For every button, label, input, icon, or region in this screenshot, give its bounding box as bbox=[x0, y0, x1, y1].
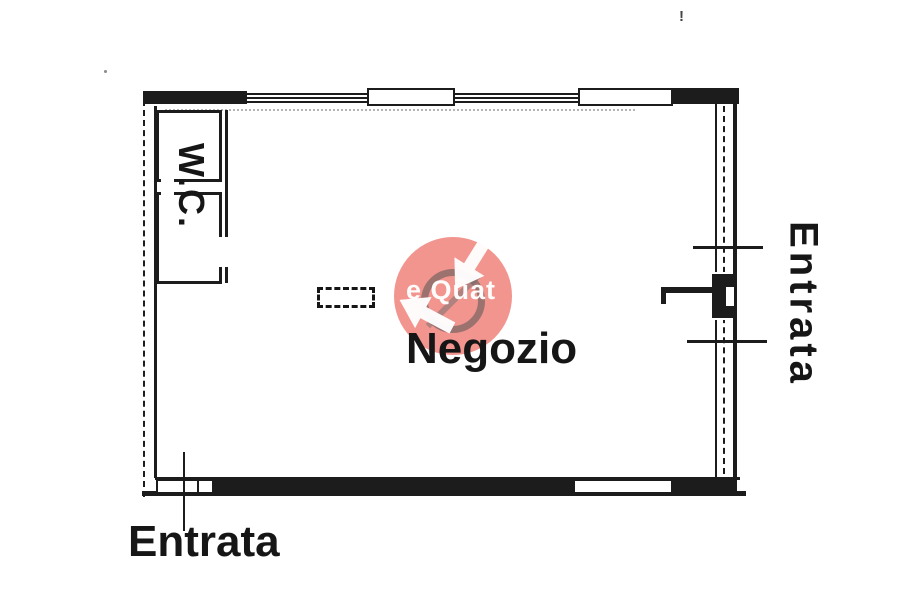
watermark-text: e Quat bbox=[406, 275, 496, 306]
shop-label: Negozio bbox=[406, 324, 577, 374]
top-wall-solid-left bbox=[143, 91, 247, 104]
right-wall-tick-upper bbox=[693, 246, 763, 249]
bottom-wall-left-box bbox=[156, 479, 214, 494]
wc-label: W.C. bbox=[170, 143, 212, 229]
bottom-wall-left-box-divider bbox=[197, 481, 199, 492]
bottom-wall-solid-right bbox=[671, 480, 734, 493]
right-door-jamb-notch bbox=[726, 287, 734, 306]
right-door-leaf bbox=[661, 287, 717, 293]
floor-plan: e Quat W.C. Negozio Entrata Entrata ! bbox=[0, 0, 900, 600]
left-wall-dashed-line bbox=[143, 100, 145, 497]
wc-right-door-gap bbox=[218, 237, 230, 267]
top-wall-pillar-2 bbox=[578, 88, 673, 106]
top-wall-solid-right bbox=[673, 88, 739, 104]
top-wall-window-1 bbox=[247, 93, 367, 103]
right-wall-tick-lower bbox=[687, 340, 767, 343]
right-door-leaf-hook bbox=[661, 287, 666, 304]
entrance-bottom-label: Entrata bbox=[128, 517, 280, 567]
scan-dotted-row bbox=[165, 109, 635, 111]
scan-exclamation-mark: ! bbox=[679, 8, 684, 25]
bottom-wall-solid-band bbox=[213, 480, 573, 493]
top-wall-pillar-1 bbox=[367, 88, 455, 106]
fixture-dashed-rect bbox=[317, 287, 375, 308]
top-wall-window-2 bbox=[455, 93, 578, 103]
bottom-wall-window-box bbox=[573, 479, 673, 494]
entrance-right-label: Entrata bbox=[781, 221, 826, 387]
scan-speck bbox=[104, 70, 107, 73]
